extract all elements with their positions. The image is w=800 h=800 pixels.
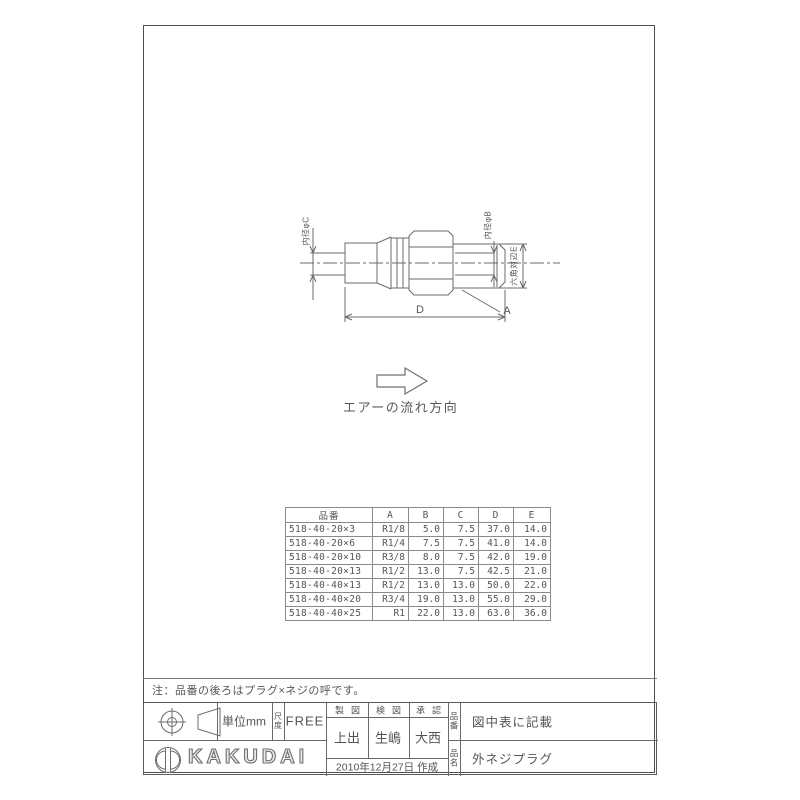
kakudai-logo-icon	[153, 745, 183, 775]
table-cell: R1/2	[373, 579, 409, 593]
approved-label: 承認	[416, 704, 448, 717]
table-cell: 14.0	[514, 523, 551, 537]
dim-label-d: D	[416, 304, 424, 316]
dim-label-a: A	[503, 305, 510, 317]
table-cell: 41.0	[479, 537, 514, 551]
table-cell: 29.0	[514, 593, 551, 607]
col-header: B	[409, 508, 444, 523]
col-header: 品番	[286, 508, 373, 523]
table-cell: 13.0	[444, 607, 479, 621]
col-header: E	[514, 508, 551, 523]
approved-by: 大西	[415, 728, 441, 747]
divider	[448, 740, 658, 741]
part-number-label: 品番	[448, 712, 460, 731]
table-row: 518-40-20×3R1/85.07.537.014.0	[286, 523, 551, 537]
table-cell: R3/8	[373, 551, 409, 565]
table-row: 518-40-20×10R3/88.07.542.019.0	[286, 551, 551, 565]
unit-label: 単位mm	[222, 713, 266, 730]
table-cell: 7.5	[444, 537, 479, 551]
divider	[368, 703, 369, 758]
company-name: KAKUDAI	[188, 746, 308, 769]
table-cell: 37.0	[479, 523, 514, 537]
drafted-label: 製図	[335, 704, 367, 717]
table-cell: R1	[373, 607, 409, 621]
flow-arrow-icon	[376, 366, 430, 396]
col-header: D	[479, 508, 514, 523]
table-cell: 21.0	[514, 565, 551, 579]
dim-D	[345, 287, 505, 322]
table-cell: 518-40-40×25	[286, 607, 373, 621]
table-cell: 55.0	[479, 593, 514, 607]
table-cell: 36.0	[514, 607, 551, 621]
part-name-label: 品名	[448, 749, 460, 768]
col-header: A	[373, 508, 409, 523]
part-number-value: 図中表に記載	[472, 712, 553, 731]
table-cell: 63.0	[479, 607, 514, 621]
table-cell: 7.5	[444, 523, 479, 537]
spec-table-header-row: 品番 A B C D E	[286, 508, 551, 523]
divider	[409, 703, 410, 758]
table-cell: 518-40-40×13	[286, 579, 373, 593]
table-cell: 14.0	[514, 537, 551, 551]
table-cell: 518-40-40×20	[286, 593, 373, 607]
leader-A	[462, 290, 500, 312]
projection-symbol-icon	[152, 705, 224, 738]
divider	[326, 717, 448, 718]
table-cell: 13.0	[444, 593, 479, 607]
dim-label-c: 内径φC	[301, 217, 312, 246]
dim-label-b: 内径φB	[483, 211, 494, 240]
spec-table-body: 518-40-20×3R1/85.07.537.014.0518-40-20×6…	[286, 523, 551, 621]
table-cell: 8.0	[409, 551, 444, 565]
table-row: 518-40-20×13R1/213.07.542.521.0	[286, 565, 551, 579]
flow-direction-label: エアーの流れ方向	[343, 397, 458, 416]
table-cell: 19.0	[514, 551, 551, 565]
table-cell: 13.0	[409, 565, 444, 579]
dim-B	[491, 241, 497, 287]
table-cell: 518-40-20×13	[286, 565, 373, 579]
note-divider	[143, 678, 657, 679]
divider	[144, 740, 326, 741]
fitting-drawing	[290, 195, 570, 360]
col-header: C	[444, 508, 479, 523]
spec-table: 品番 A B C D E 518-40-20×3R1/85.07.537.014…	[285, 507, 551, 621]
table-cell: 19.0	[409, 593, 444, 607]
table-row: 518-40-40×20R3/419.013.055.029.0	[286, 593, 551, 607]
table-row: 518-40-40×25R122.013.063.036.0	[286, 607, 551, 621]
table-cell: 518-40-20×6	[286, 537, 373, 551]
checked-label: 検図	[376, 704, 408, 717]
scale-value: FREE	[286, 714, 325, 729]
table-cell: R3/4	[373, 593, 409, 607]
table-row: 518-40-20×6R1/47.57.541.014.0	[286, 537, 551, 551]
table-cell: 13.0	[409, 579, 444, 593]
table-cell: 42.5	[479, 565, 514, 579]
scale-label: 尺度	[273, 712, 284, 730]
dim-C	[310, 228, 345, 300]
table-cell: 42.0	[479, 551, 514, 565]
note-text: 注：品番の後ろはプラグ×ネジの呼です。	[152, 682, 365, 698]
table-cell: R1/4	[373, 537, 409, 551]
divider	[326, 703, 327, 776]
table-cell: R1/8	[373, 523, 409, 537]
drafted-by: 上出	[334, 728, 360, 747]
table-cell: 7.5	[444, 565, 479, 579]
creation-date: 2010年12月27日 作成	[336, 760, 438, 775]
table-row: 518-40-40×13R1/213.013.050.022.0	[286, 579, 551, 593]
table-cell: 5.0	[409, 523, 444, 537]
dim-label-e: 六角対辺E	[509, 246, 520, 286]
table-cell: 22.0	[514, 579, 551, 593]
bore-lines-right	[455, 253, 494, 275]
table-cell: 518-40-20×3	[286, 523, 373, 537]
checked-by: 生嶋	[375, 728, 401, 747]
table-cell: 7.5	[444, 551, 479, 565]
table-cell: 13.0	[444, 579, 479, 593]
table-cell: R1/2	[373, 565, 409, 579]
part-name-value: 外ネジプラグ	[472, 749, 553, 768]
table-cell: 518-40-20×10	[286, 551, 373, 565]
title-block: 単位mm 尺度 FREE 製図 検図 承認 上出 生嶋 大西 2010年12月2…	[143, 702, 657, 775]
table-cell: 7.5	[409, 537, 444, 551]
table-cell: 50.0	[479, 579, 514, 593]
table-cell: 22.0	[409, 607, 444, 621]
